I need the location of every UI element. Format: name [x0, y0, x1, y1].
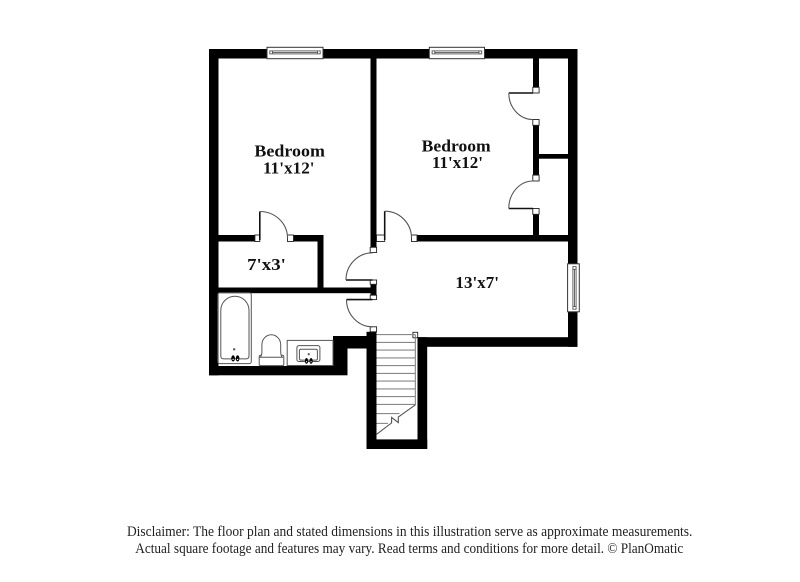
svg-text:11'x12': 11'x12' [263, 158, 315, 177]
svg-text:Disclaimer: The floor plan and: Disclaimer: The floor plan and stated di… [127, 524, 693, 540]
svg-text:Actual square footage and feat: Actual square footage and features may v… [135, 541, 683, 557]
svg-text:11'x12': 11'x12' [432, 153, 483, 172]
svg-text:7'x3': 7'x3' [247, 255, 286, 274]
svg-text:13'x7': 13'x7' [455, 273, 499, 292]
